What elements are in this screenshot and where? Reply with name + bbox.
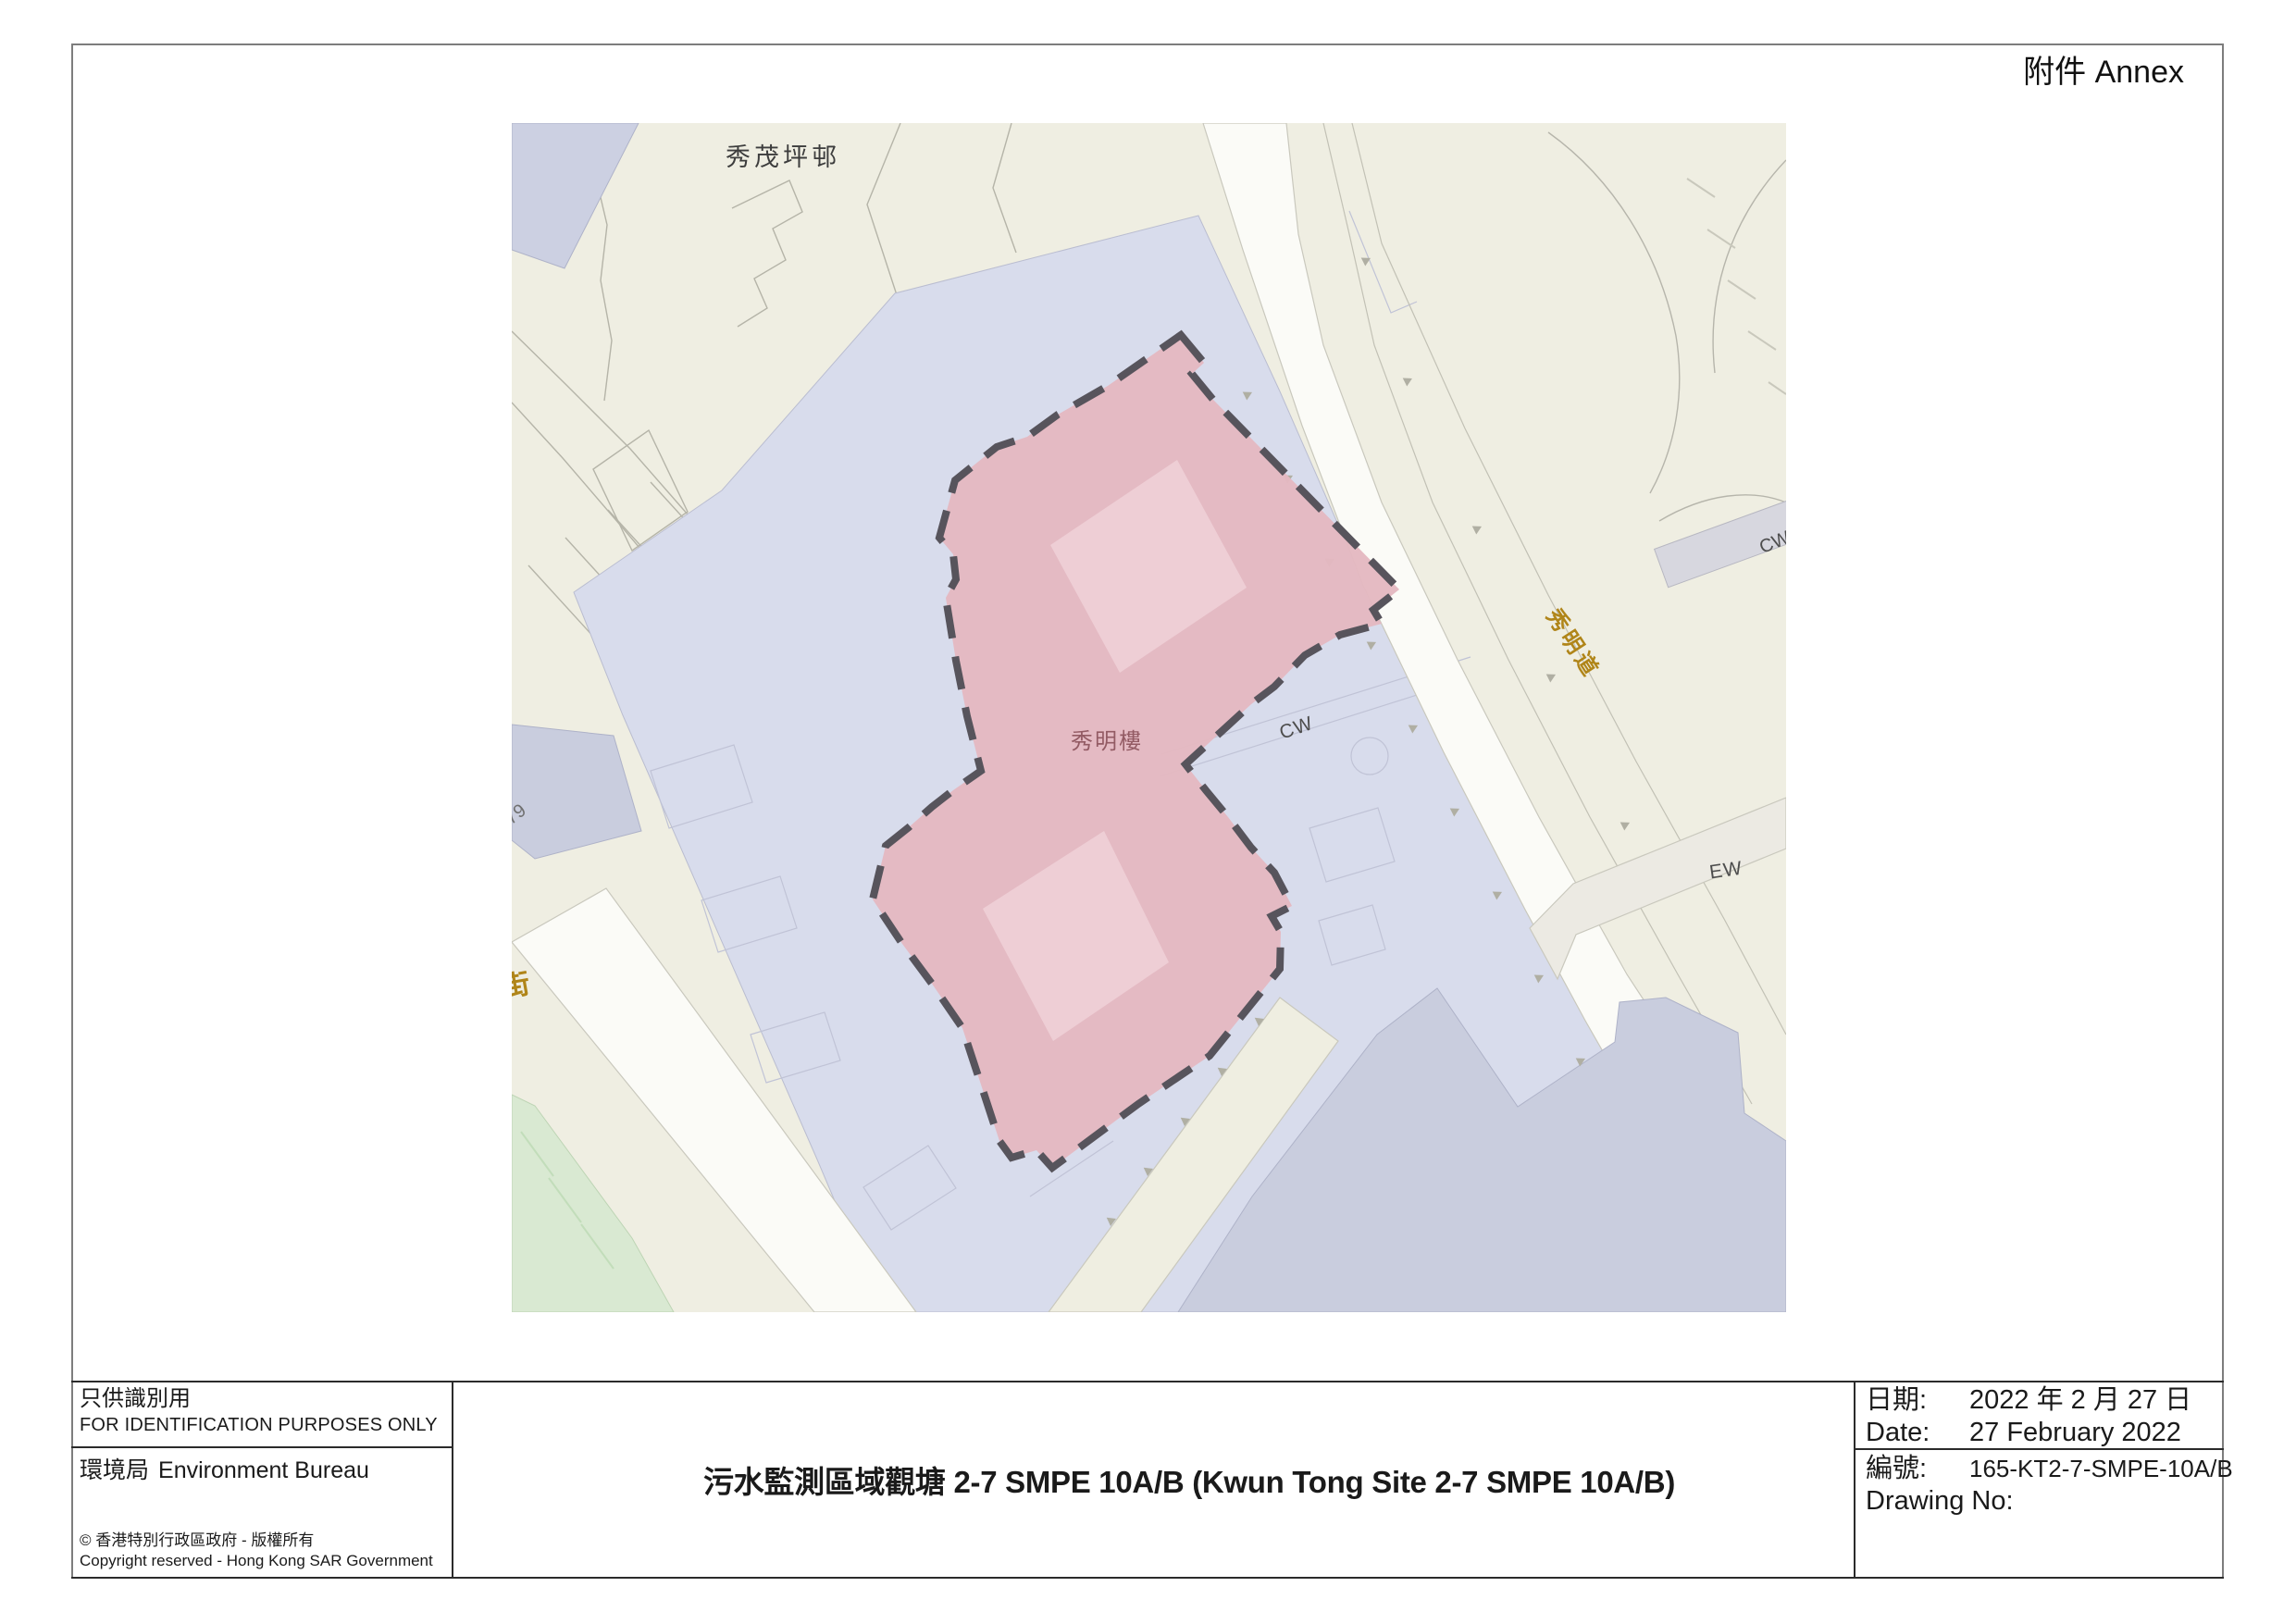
copyright-en: Copyright reserved - Hong Kong SAR Gover…: [80, 1551, 433, 1571]
drawing-no-row: 編號: 165-KT2-7-SMPE-10A/B Drawing No:: [1855, 1450, 2224, 1518]
annex-label: 附件 Annex: [2023, 46, 2184, 92]
date-value-en: 27 February 2022: [1969, 1417, 2181, 1449]
date-value-zh: 2022 年 2 月 27 日: [1969, 1384, 2191, 1417]
site-building-label: 秀明樓: [1071, 729, 1143, 754]
bureau-row: 環境局Environment Bureau © 香港特別行政區政府 - 版權所有…: [71, 1448, 452, 1577]
estate-name-label: 秀茂坪邨: [726, 143, 840, 171]
bureau-name-zh: 環境局: [80, 1457, 149, 1483]
bureau-name-en: Environment Bureau: [158, 1457, 369, 1483]
title-block-right: 日期: 2022 年 2 月 27 日 Date: 27 February 20…: [1854, 1382, 2224, 1577]
map-image: 秀茂坪邨 秀明樓 秀明道 CW CW EW 79 街 坪: [512, 123, 1786, 1312]
drawing-sheet: 附件 Annex: [0, 0, 2296, 1624]
drawing-no-label-en: Drawing No:: [1866, 1485, 2014, 1518]
title-block-left: 只供識別用 FOR IDENTIFICATION PURPOSES ONLY 環…: [71, 1382, 453, 1577]
basemap: 秀茂坪邨 秀明樓 秀明道 CW CW EW 79 街 坪: [512, 123, 1786, 1312]
copyright-note: © 香港特別行政區政府 - 版權所有 Copyright reserved - …: [80, 1531, 433, 1571]
sheet-title: 污水監測區域觀塘 2-7 SMPE 10A/B (Kwun Tong Site …: [703, 1457, 1675, 1502]
title-block: 只供識別用 FOR IDENTIFICATION PURPOSES ONLY 環…: [71, 1381, 2224, 1579]
date-label-en: Date:: [1866, 1417, 1969, 1449]
drawing-no-label-zh: 編號:: [1866, 1453, 1969, 1485]
identification-en: FOR IDENTIFICATION PURPOSES ONLY: [80, 1413, 443, 1438]
identification-zh: 只供識別用: [80, 1385, 443, 1413]
title-block-center: 污水監測區域觀塘 2-7 SMPE 10A/B (Kwun Tong Site …: [455, 1382, 1923, 1577]
date-row: 日期: 2022 年 2 月 27 日 Date: 27 February 20…: [1855, 1382, 2224, 1450]
drawing-no-value: 165-KT2-7-SMPE-10A/B: [1969, 1453, 2233, 1485]
copyright-zh: © 香港特別行政區政府 - 版權所有: [80, 1531, 433, 1551]
identification-row: 只供識別用 FOR IDENTIFICATION PURPOSES ONLY: [71, 1382, 452, 1448]
date-label-zh: 日期:: [1866, 1384, 1969, 1417]
bureau-name: 環境局Environment Bureau: [80, 1452, 443, 1485]
